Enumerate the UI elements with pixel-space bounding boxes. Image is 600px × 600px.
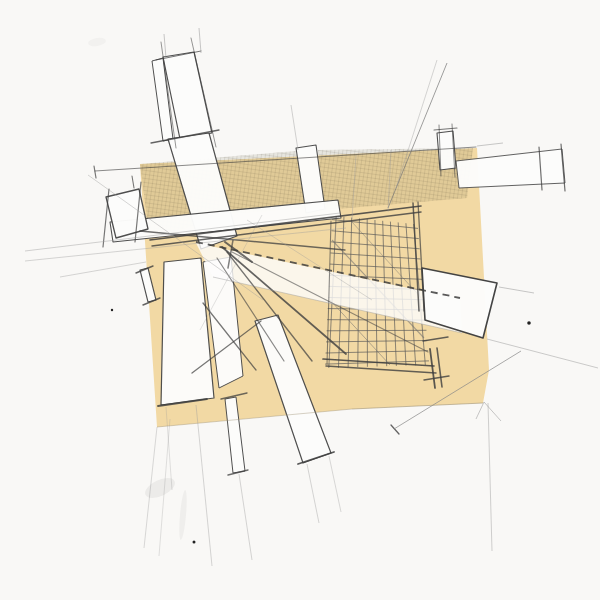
sketch-canvas bbox=[0, 0, 600, 600]
ink-speck bbox=[193, 541, 196, 544]
ink-speck bbox=[111, 309, 113, 311]
architectural-sketch bbox=[0, 0, 600, 600]
ink-speck bbox=[527, 321, 531, 325]
grid-line-h bbox=[327, 330, 427, 331]
